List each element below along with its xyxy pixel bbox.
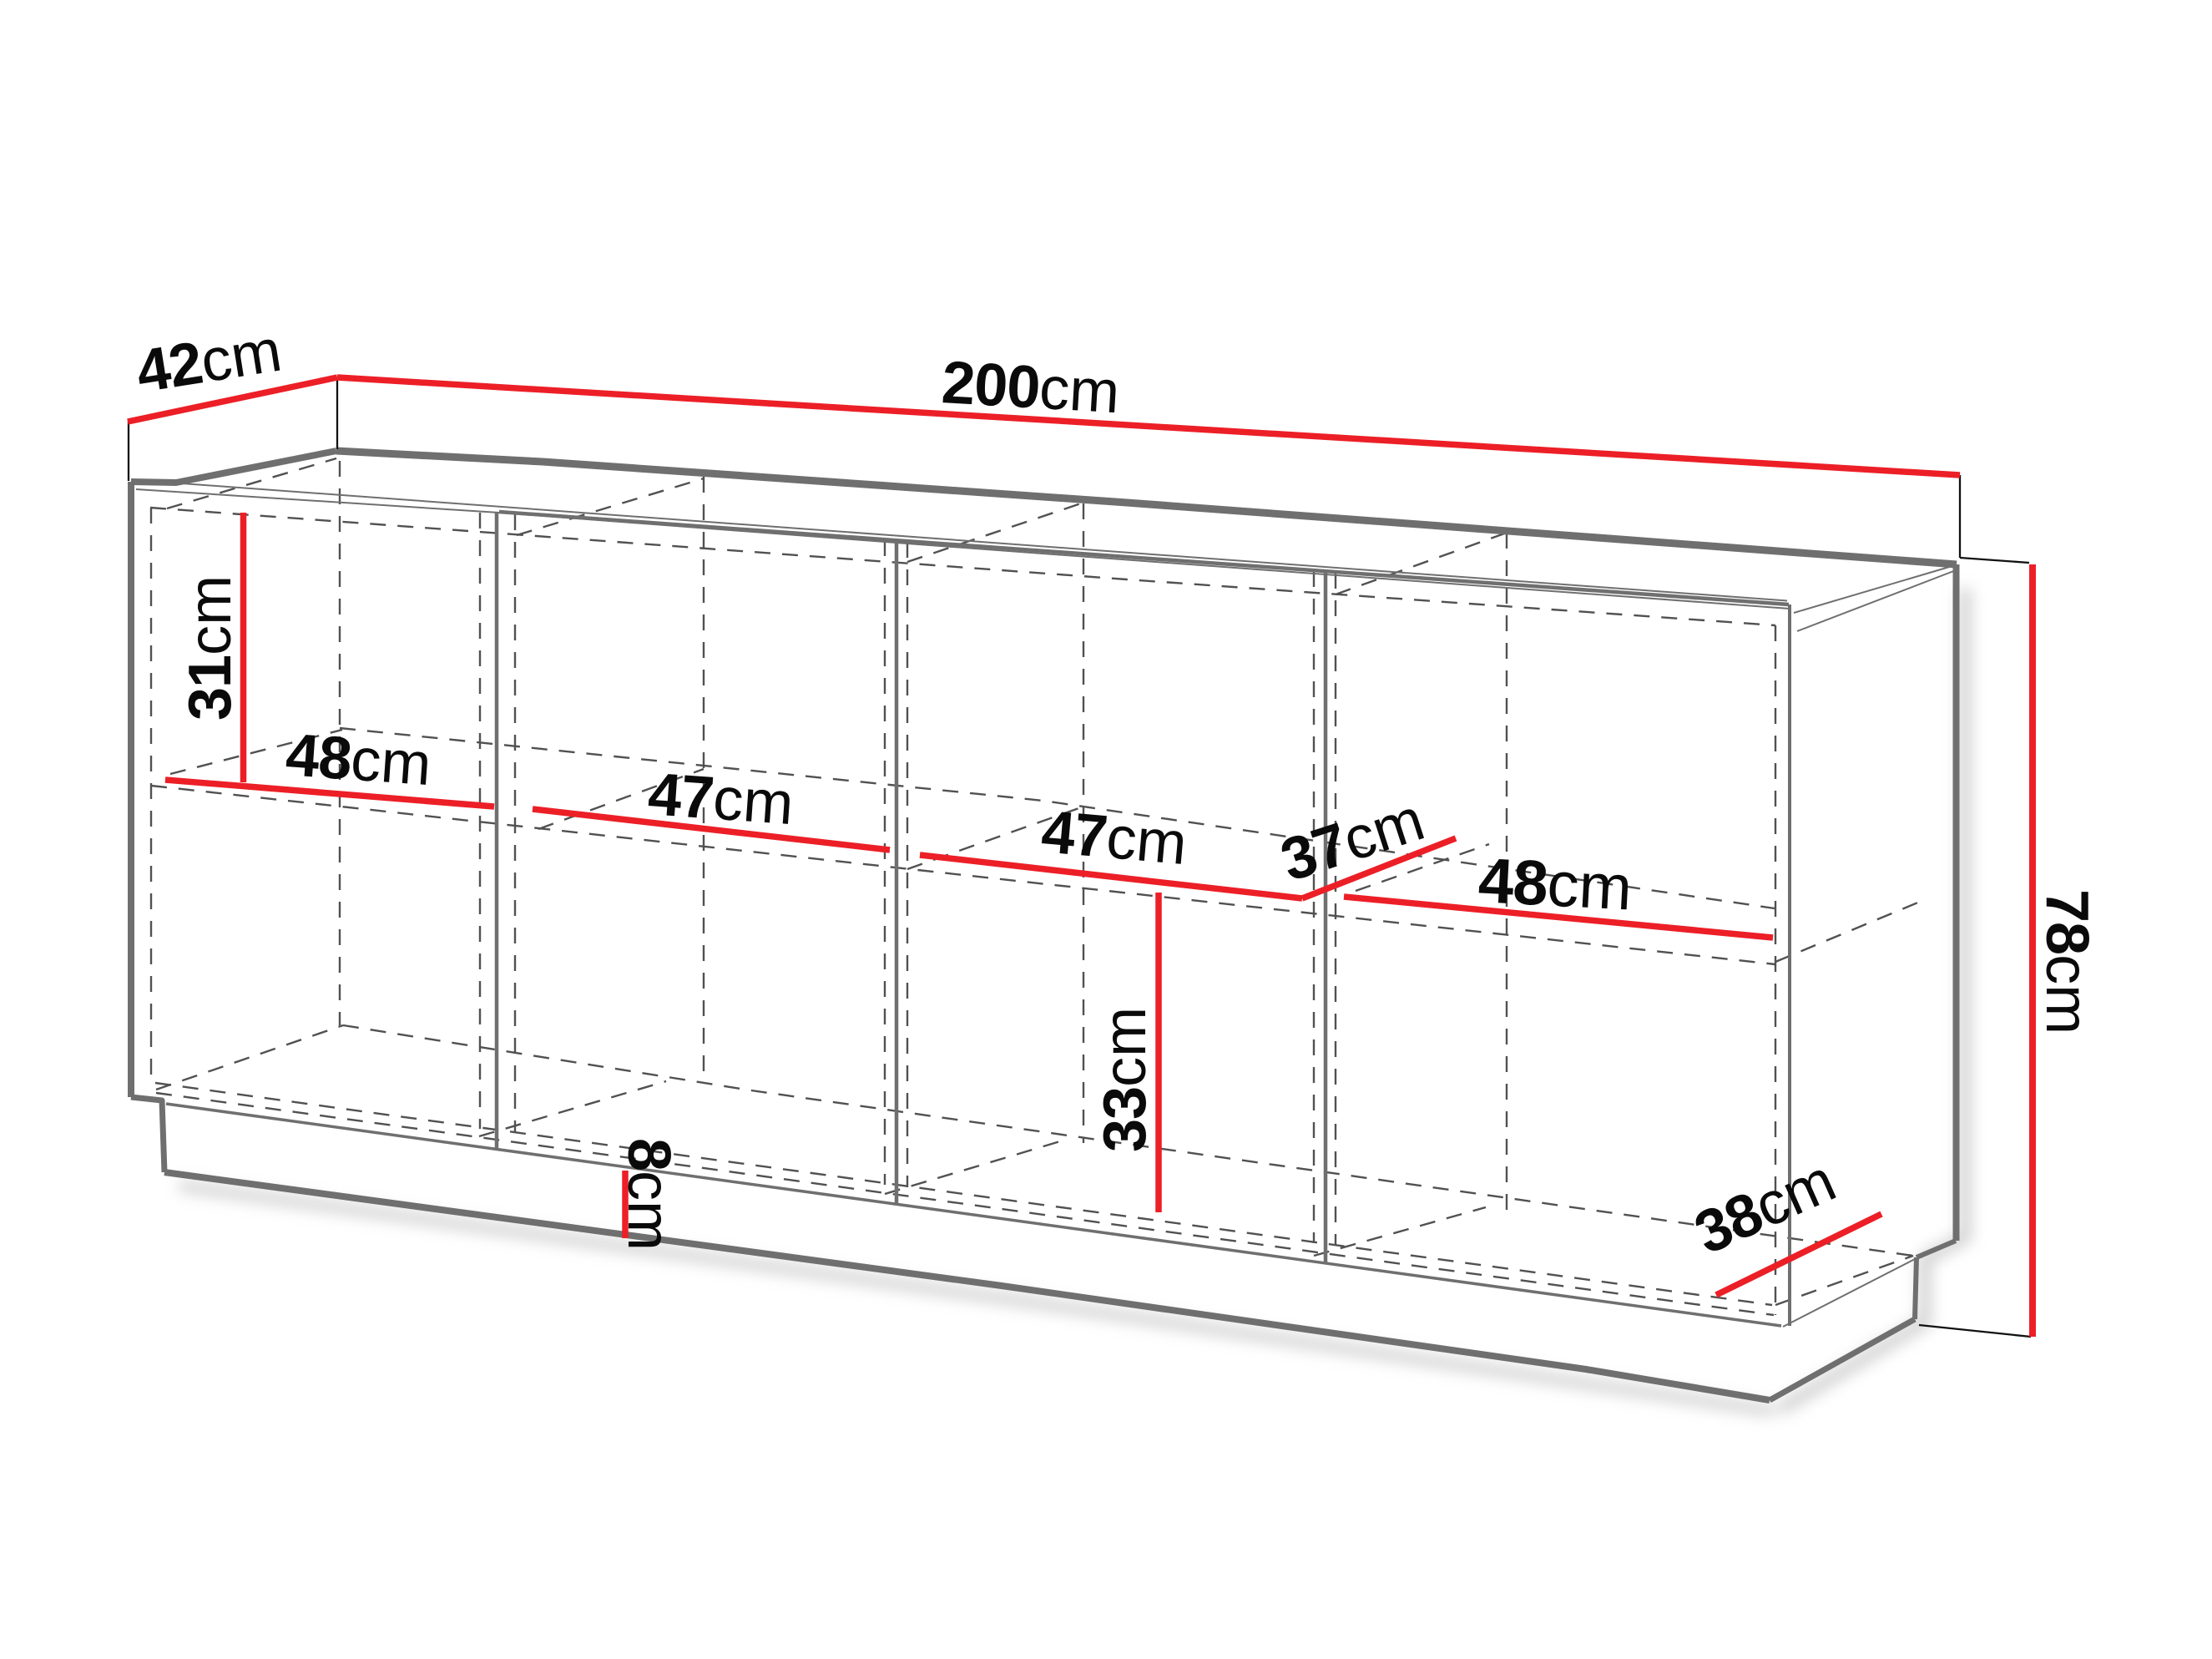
svg-text:48cm: 48cm (1477, 845, 1634, 924)
svg-text:38cm: 38cm (1685, 1147, 1846, 1267)
svg-text:200cm: 200cm (940, 349, 1121, 426)
svg-text:31cm: 31cm (177, 575, 244, 721)
svg-text:8cm: 8cm (615, 1138, 682, 1251)
svg-text:33cm: 33cm (1092, 1007, 1159, 1152)
svg-text:47cm: 47cm (646, 761, 795, 837)
svg-text:47cm: 47cm (1039, 798, 1189, 878)
svg-text:48cm: 48cm (284, 721, 433, 798)
svg-text:78cm: 78cm (2033, 889, 2100, 1034)
